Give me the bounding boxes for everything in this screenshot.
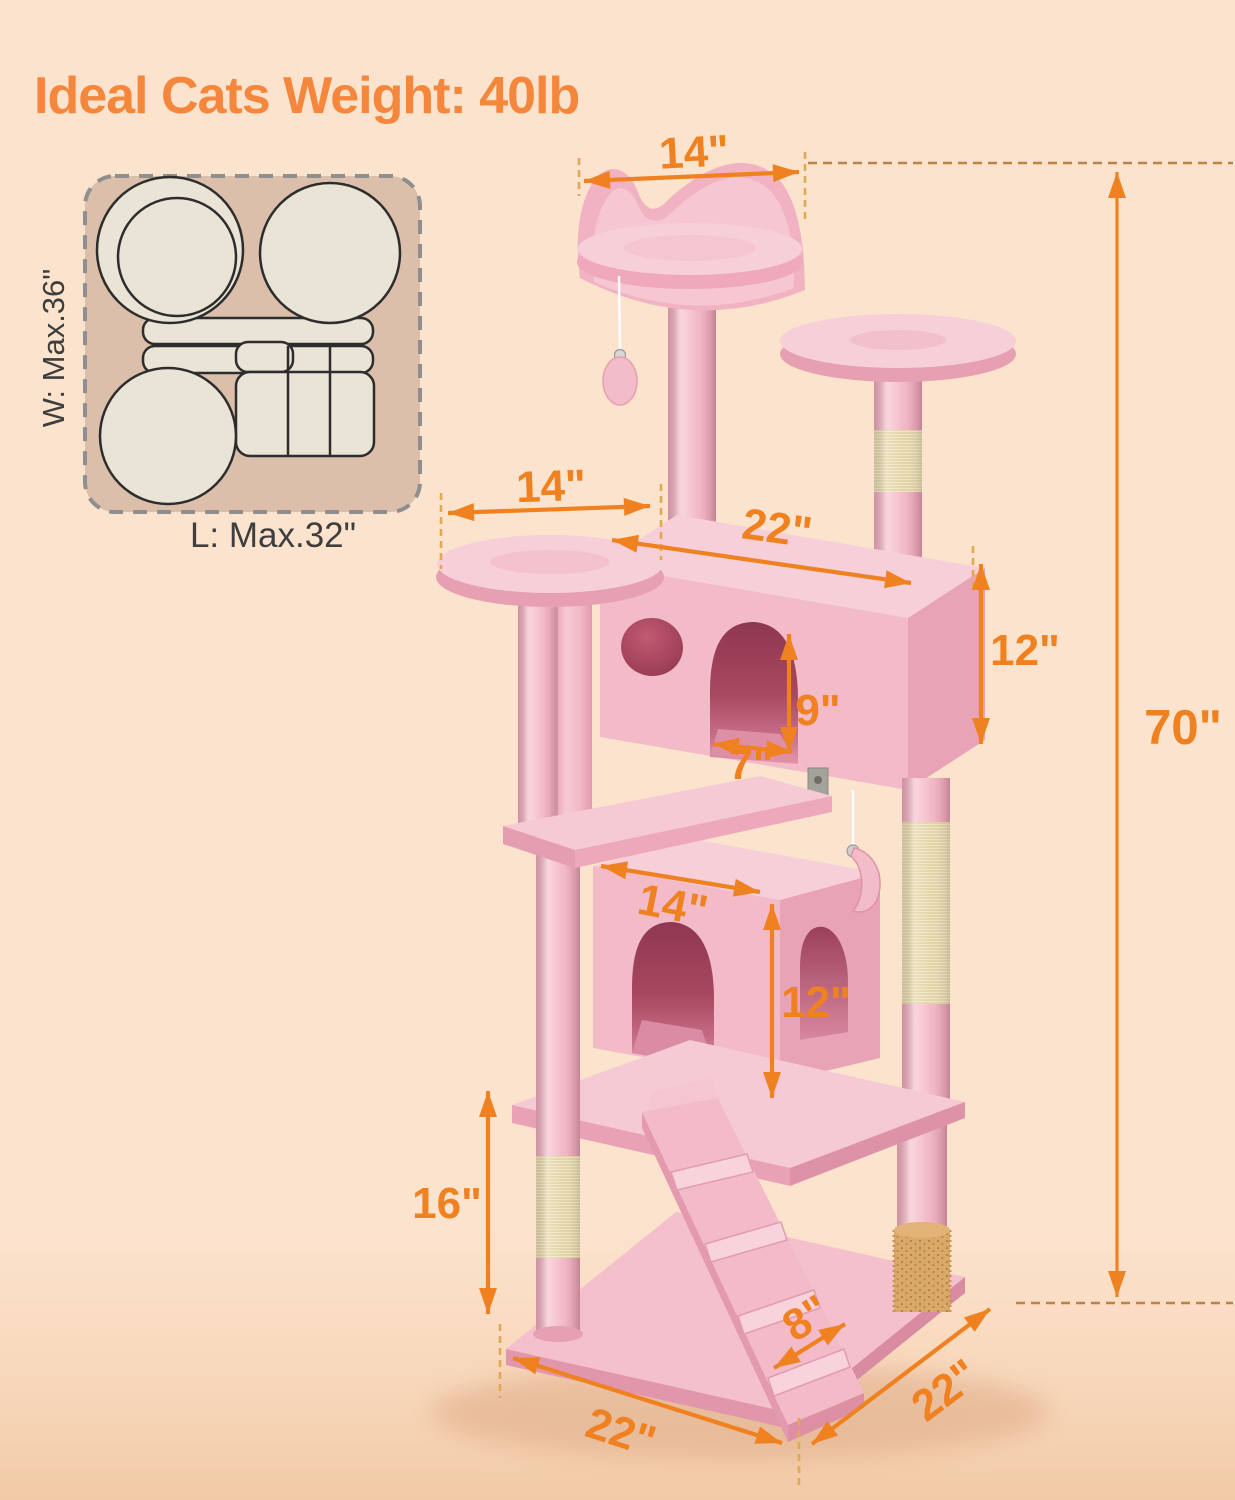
- dim-total-height: 70": [1117, 172, 1222, 1297]
- lower-condo: [593, 839, 880, 1082]
- dim-label: 7": [728, 740, 773, 789]
- footprint-condo: [236, 372, 374, 456]
- diagram-canvas: W: Max.36" L: Max.32": [0, 0, 1235, 1500]
- dim-label: 14": [515, 461, 586, 512]
- product-dimension-diagram: Ideal Cats Weight: 40lb: [0, 0, 1235, 1500]
- footprint-diagram: W: Max.36" L: Max.32": [36, 176, 420, 555]
- footprint-platform: [100, 368, 236, 504]
- dim-label: 14": [658, 126, 730, 179]
- footprint-platform: [260, 183, 400, 323]
- left-tall-post: [533, 846, 583, 1342]
- footprint-tab: [236, 342, 293, 372]
- dim-label: 22": [739, 499, 815, 557]
- dim-label: 12": [781, 978, 851, 1027]
- footprint-length-label: L: Max.32": [190, 516, 356, 555]
- footprint-width-label: W: Max.36": [36, 269, 71, 428]
- self-groomer-brush: [894, 1230, 950, 1312]
- dim-label: 16": [412, 1179, 482, 1228]
- top-right-platform: [780, 314, 1016, 568]
- dim-label: 12": [990, 626, 1060, 675]
- dim-upper-condo-height: 12": [981, 564, 1060, 744]
- dim-label: 70": [1144, 701, 1222, 755]
- dim-label: 9": [795, 686, 840, 735]
